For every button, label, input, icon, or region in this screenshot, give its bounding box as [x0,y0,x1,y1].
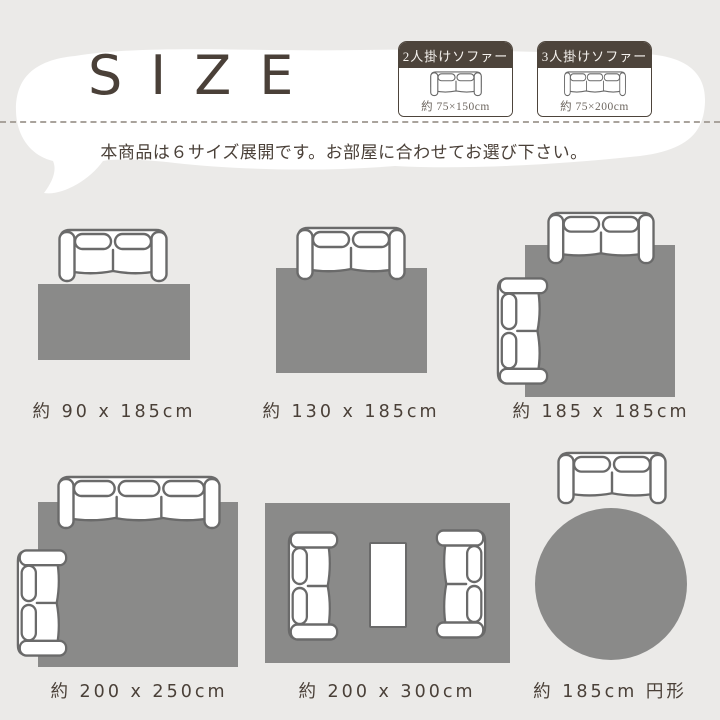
size-guide-panel: SIZE 本商品は６サイズ展開です。お部屋に合わせてお選び下さい。 2人掛けソフ… [0,0,720,720]
rug-90x185 [38,284,190,360]
divider-dashed-line [0,121,720,123]
sofa-3seat-icon [57,475,221,531]
size-label-200x300: 約 200 x 300cm [277,678,497,703]
legend-box-2seater-sofa: 2人掛けソファー 約 75×150cm [398,41,513,117]
legend-2seater-size: 約 75×150cm [421,98,490,114]
sofa-2seat-icon-vertical [496,275,550,385]
rug-130x185 [276,268,427,373]
legend-3seater-title: 3人掛けソファー [538,42,651,68]
sofa-3seat-icon [564,71,626,97]
sofa-2seat-icon-vertical [287,529,340,641]
table-icon [369,542,407,628]
sofa-2seat-icon [296,226,406,282]
legend-2seater-body: 約 75×150cm [399,68,512,116]
size-label-185x185: 約 185 x 185cm [491,398,711,423]
legend-2seater-title: 2人掛けソファー [399,42,512,68]
sofa-2seat-icon-vertical [434,529,487,641]
sofa-2seat-icon [547,211,655,266]
rug-185-circle [535,508,687,660]
legend-box-3seater-sofa: 3人掛けソファー 約 75×200cm [537,41,652,117]
page-title: SIZE [88,44,321,107]
size-label-130x185: 約 130 x 185cm [241,398,461,423]
sofa-2seat-icon [557,451,667,506]
subtitle-text: 本商品は６サイズ展開です。お部屋に合わせてお選び下さい。 [30,138,658,163]
legend-3seater-body: 約 75×200cm [538,68,651,116]
legend-3seater-size: 約 75×200cm [560,98,629,114]
size-label-90x185: 約 90 x 185cm [4,398,224,423]
size-label-185-circle: 約 185cm 円形 [500,678,720,703]
size-label-200x250: 約 200 x 250cm [29,678,249,703]
sofa-2seat-icon [430,71,482,97]
sofa-2seat-icon-vertical [16,547,69,657]
sofa-2seat-icon [58,228,168,284]
